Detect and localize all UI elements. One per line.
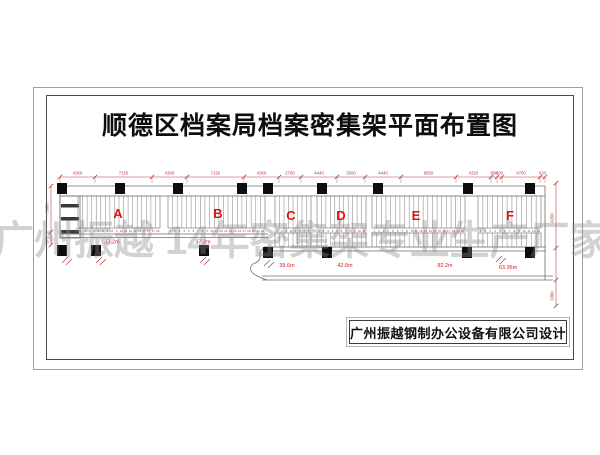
designer-text: 广州振越钢制办公设备有限公司设计 xyxy=(349,320,567,344)
column xyxy=(173,183,183,194)
column xyxy=(115,183,125,194)
column xyxy=(525,183,535,194)
dimension-label: 620 xyxy=(539,171,547,176)
section-length-label: 39.6m xyxy=(279,263,295,269)
survey-mark xyxy=(264,260,270,266)
survey-mark xyxy=(268,262,274,268)
dimension-label: 600 xyxy=(496,171,504,176)
left-room-shelf xyxy=(61,204,79,208)
dimension-label: 4440 xyxy=(378,171,388,176)
dimension-label: 3500 xyxy=(346,171,356,176)
watermark: 广州振越 14年密集架专业生产厂家 xyxy=(0,208,600,260)
dimension-label: 4320 xyxy=(469,171,479,176)
dimension-label: 4750 xyxy=(516,171,526,176)
column xyxy=(263,183,273,194)
column xyxy=(373,183,383,194)
dimension-label: 2790 xyxy=(285,171,295,176)
dimension-label: 7150 xyxy=(119,171,129,176)
dimension-label: 7150 xyxy=(211,171,221,176)
dimension-label: 1880 xyxy=(550,291,555,301)
column xyxy=(317,183,327,194)
designer-title-block: 广州振越钢制办公设备有限公司设计 xyxy=(346,317,570,347)
dimension-label: 6850 xyxy=(424,171,434,176)
column xyxy=(237,183,247,194)
column xyxy=(463,183,473,194)
section-length-label: 42.6m xyxy=(337,263,353,269)
dimension-label: 4360 xyxy=(73,171,83,176)
cad-drawing-screenshot: 顺德区档案局档案密集架平面布置图 12345678910111213141516… xyxy=(0,0,600,455)
section-length-label: 82.2m xyxy=(437,263,453,269)
dimension-label: 4360 xyxy=(165,171,175,176)
dimension-label: 4360 xyxy=(257,171,267,176)
dimension-label: 4440 xyxy=(314,171,324,176)
section-length-label: 63.36m xyxy=(499,265,518,271)
column xyxy=(57,183,67,194)
